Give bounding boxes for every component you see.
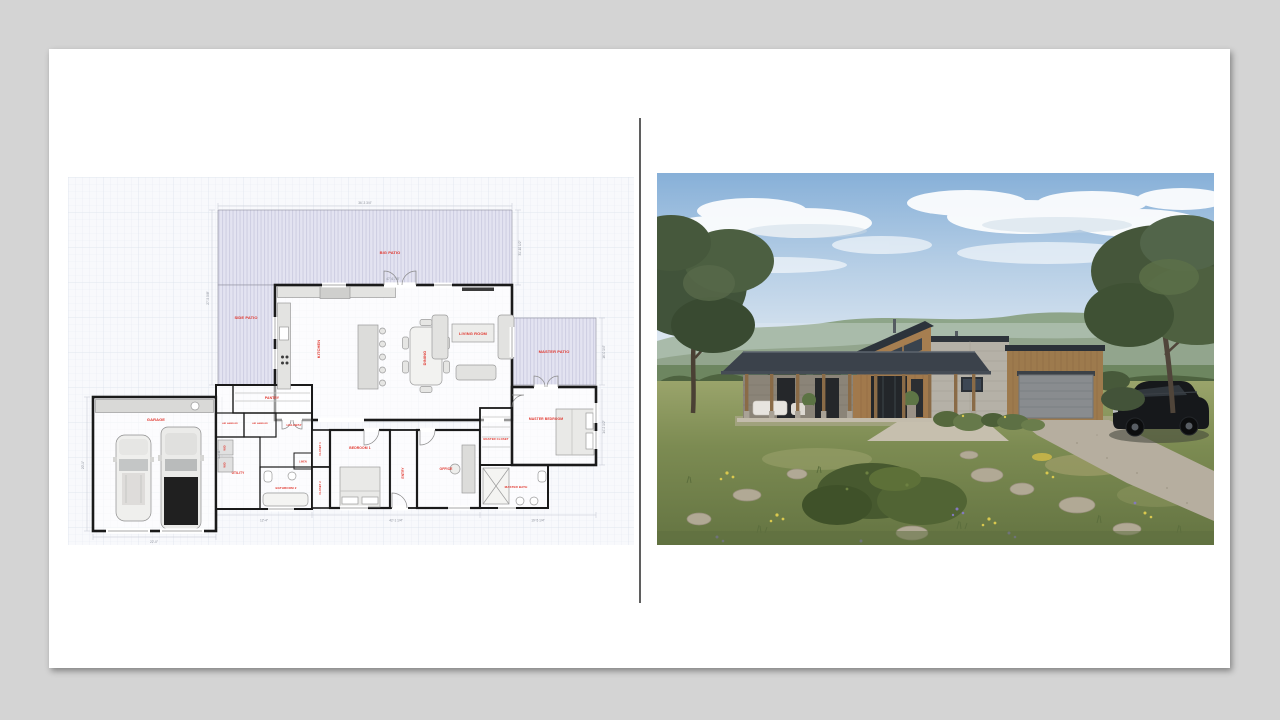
- floor-plan-image: BIG PATIO SIDE PATIO MASTER PATIO KITCHE…: [68, 177, 634, 545]
- big-patio-area: [218, 210, 512, 285]
- svg-text:14'-2 1/2": 14'-2 1/2": [602, 420, 606, 433]
- room-label: OFFICE: [439, 467, 453, 471]
- room-label: BATHROOM 2: [276, 486, 297, 490]
- room-label: MASTER BEDROOM: [529, 417, 563, 421]
- porch-fascia: [721, 371, 991, 375]
- svg-text:47'-6 7/8": 47'-6 7/8": [386, 277, 399, 281]
- svg-text:36'-3 3/4": 36'-3 3/4": [358, 201, 371, 205]
- room-label: CLOSET 1: [318, 442, 322, 456]
- svg-text:22'-0": 22'-0": [150, 540, 158, 544]
- room-label: AIR HANDLER: [252, 422, 268, 425]
- svg-text:12'-4": 12'-4": [260, 519, 268, 523]
- tv: [462, 288, 494, 292]
- room-label: LINEN: [299, 461, 307, 464]
- svg-text:19'-5 1/4": 19'-5 1/4": [531, 519, 544, 523]
- room-label: MASTER BATH: [505, 485, 528, 489]
- svg-text:27'-5 5/8": 27'-5 5/8": [206, 291, 210, 304]
- room-label: PANTRY: [265, 396, 280, 400]
- house-photo: [657, 173, 1214, 545]
- room-label: SIDE PATIO: [234, 315, 257, 320]
- slide-canvas: BIG PATIO SIDE PATIO MASTER PATIO KITCHE…: [49, 49, 1230, 668]
- svg-text:42'-1 1/4": 42'-1 1/4": [389, 519, 402, 523]
- garage-door: [1019, 375, 1093, 418]
- room-label: BEDROOM 1: [349, 446, 370, 450]
- office-desk: [462, 445, 475, 493]
- svg-text:20'-1": 20'-1": [81, 461, 85, 469]
- kitchen-counter: [278, 303, 291, 389]
- bed-master: [556, 409, 594, 455]
- potted-plant: [903, 391, 919, 407]
- flue: [893, 319, 896, 333]
- room-label: ENTRY: [401, 467, 405, 479]
- room-label: KITCHEN: [316, 340, 321, 358]
- floor-plan-drawing: BIG PATIO SIDE PATIO MASTER PATIO KITCHE…: [68, 177, 634, 545]
- room-label: MASTER CLOSET: [483, 437, 508, 441]
- room-label: AIR HANDLER: [222, 422, 238, 425]
- sofa-bottom: [456, 365, 496, 380]
- svg-text:31'-10 1/2": 31'-10 1/2": [518, 240, 522, 255]
- bed-bedroom1: [340, 467, 380, 507]
- car-suv: [113, 435, 154, 521]
- range-hood: [320, 287, 350, 299]
- room-label: DINING: [422, 351, 427, 366]
- car-truck: [158, 427, 204, 529]
- kitchen-island: [358, 325, 378, 389]
- room-label: LIVING ROOM: [459, 331, 488, 336]
- room-label: W/D: [223, 462, 227, 467]
- svg-text:10'-11": 10'-11": [217, 449, 221, 459]
- room-label: MASTER PATIO: [539, 349, 570, 354]
- house-rendering: [657, 173, 1214, 545]
- garage-roof-edge: [1005, 345, 1105, 351]
- room-label: HALLWAY: [286, 423, 301, 427]
- potted-plant: [802, 393, 816, 407]
- room-label: GARAGE: [147, 417, 165, 422]
- sofa-left: [432, 315, 448, 359]
- svg-text:16'-0 1/4": 16'-0 1/4": [602, 345, 606, 358]
- kitchen-sink: [280, 327, 289, 340]
- room-label: BIG PATIO: [380, 250, 401, 255]
- presentation-backdrop: BIG PATIO SIDE PATIO MASTER PATIO KITCHE…: [0, 0, 1280, 720]
- porch-window: [815, 378, 839, 418]
- porch-roof: [721, 352, 991, 373]
- room-label: CLOSET 2: [318, 481, 322, 495]
- garage-sink: [191, 402, 199, 410]
- vertical-divider: [639, 118, 641, 603]
- room-label: W/D: [223, 445, 227, 450]
- side-patio-area: [218, 285, 275, 385]
- room-label: UTILITY: [232, 471, 246, 475]
